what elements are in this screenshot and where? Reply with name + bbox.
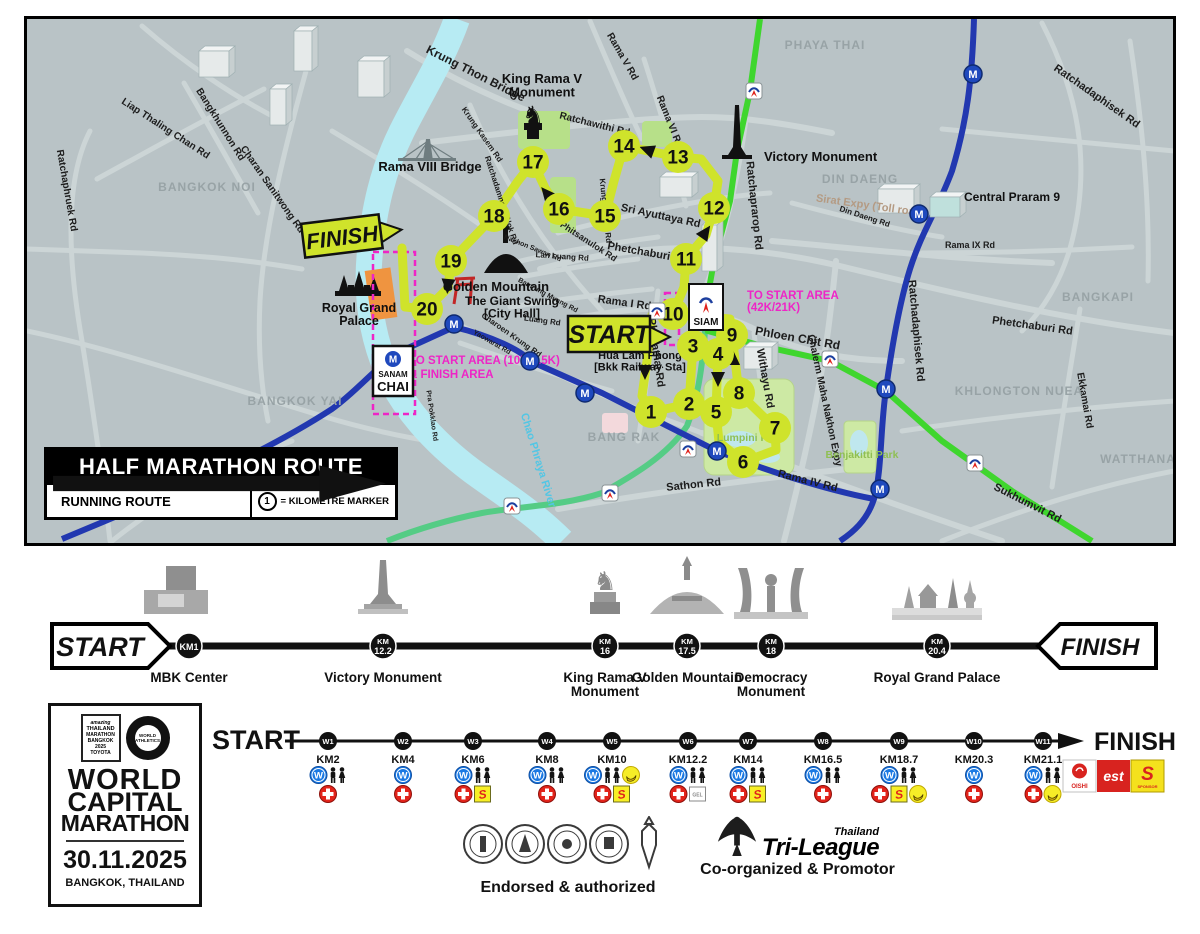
district-label: BANGKOK YAI bbox=[247, 394, 342, 408]
svg-text:W: W bbox=[533, 771, 542, 782]
station-km-label: KM10 bbox=[597, 754, 626, 766]
road-label: Rama IX Rd bbox=[945, 240, 995, 250]
landmark-icon-democracy bbox=[734, 568, 808, 619]
district-label: PHAYA THAI bbox=[785, 38, 866, 52]
label: Royal Grand Palace bbox=[874, 670, 1001, 685]
km-marker-number: 20 bbox=[416, 300, 437, 321]
km-marker-number: 8 bbox=[734, 384, 745, 405]
km-marker-number: 7 bbox=[770, 419, 781, 440]
district-label: BANGKAPI bbox=[1062, 290, 1134, 304]
road-label: Ratchadaphisek Rd bbox=[906, 279, 927, 382]
world-athletics-badge: WORLD ATHLETICS bbox=[126, 716, 170, 760]
km-marker-number: 1 bbox=[646, 403, 657, 424]
svg-text:W3: W3 bbox=[467, 737, 478, 746]
svg-text:est: est bbox=[1103, 768, 1125, 784]
svg-text:W10: W10 bbox=[966, 737, 981, 746]
label: MBK Center bbox=[150, 670, 228, 685]
toilet-icon bbox=[826, 767, 841, 783]
svg-text:M: M bbox=[525, 356, 534, 368]
district-label: BANG RAK bbox=[588, 430, 661, 444]
route-map: ♞ bbox=[24, 16, 1176, 546]
running-route-arrow-icon bbox=[47, 450, 395, 517]
district-label: DIN DAENG bbox=[822, 172, 898, 186]
svg-text:W1: W1 bbox=[322, 737, 333, 746]
svg-text:W8: W8 bbox=[817, 737, 828, 746]
staging-note: TO START AREA bbox=[747, 290, 839, 302]
road-label: Ekkamai Rd bbox=[1074, 372, 1095, 430]
label: Rama VIII Bridge bbox=[378, 159, 481, 174]
svg-text:CHAI: CHAI bbox=[377, 379, 409, 394]
road-label: Sri Ayuttaya Rd bbox=[620, 202, 702, 231]
label: King Rama VMonument bbox=[502, 71, 583, 100]
svg-text:M: M bbox=[875, 484, 884, 496]
km-marker-number: 3 bbox=[688, 337, 699, 358]
toilet-icon bbox=[751, 767, 766, 783]
endorsed-logos: Endorsed & authorized bbox=[448, 816, 688, 897]
svg-text:M: M bbox=[712, 446, 721, 458]
landmark-timeline: STARTFINISHKM1MBK CenterKM12.2Victory Mo… bbox=[0, 552, 1200, 710]
km-marker-number: 6 bbox=[738, 453, 749, 474]
toilet-icon bbox=[605, 767, 620, 783]
label: Hua Lam Phong[Bkk Railway Sta] bbox=[594, 350, 686, 374]
svg-text:W: W bbox=[734, 771, 743, 782]
km-marker-number: 12 bbox=[703, 199, 724, 220]
station-km-label: KM8 bbox=[535, 754, 558, 766]
svg-text:W2: W2 bbox=[397, 737, 408, 746]
staging-note: (42K/21K) bbox=[747, 302, 800, 314]
station-km-label: KM2 bbox=[316, 754, 339, 766]
station-km-label: KM20.3 bbox=[955, 754, 994, 766]
km-marker-number: 16 bbox=[548, 200, 569, 221]
label: DemocracyMonument bbox=[735, 670, 808, 699]
coorganized-label: Co-organized & Promotor bbox=[700, 861, 895, 879]
station-km-label: KM12.2 bbox=[669, 754, 708, 766]
svg-text:GEL: GEL bbox=[692, 793, 702, 799]
landmark-icon-mbk bbox=[144, 566, 208, 614]
svg-text:M: M bbox=[389, 355, 397, 366]
svg-text:12.2: 12.2 bbox=[374, 646, 392, 656]
km-marker-number: 9 bbox=[727, 326, 738, 347]
road-label: Lan Luang Rd bbox=[535, 250, 589, 263]
road-label: Ratchaprarop Rd bbox=[743, 161, 764, 251]
svg-text:W: W bbox=[885, 771, 894, 782]
toilet-icon bbox=[691, 767, 706, 783]
thailand-marathon-badge: amazing THAILAND MARATHON BANGKOK 2025 T… bbox=[81, 714, 121, 762]
svg-text:M: M bbox=[914, 209, 923, 221]
divider bbox=[66, 840, 184, 842]
svg-text:KM: KM bbox=[599, 637, 611, 646]
landmark-icon-rama5: ♞ bbox=[590, 566, 620, 614]
km-marker-number: 14 bbox=[613, 137, 635, 158]
garuda-emblem-icon bbox=[716, 813, 758, 859]
svg-text:KM1: KM1 bbox=[179, 642, 198, 652]
timeline-start-label: START bbox=[56, 632, 146, 662]
district-label: WATTHANA bbox=[1100, 452, 1173, 466]
coorganizer: Thailand Tri-League Co-organized & Promo… bbox=[700, 813, 895, 879]
svg-text:17.5: 17.5 bbox=[678, 646, 696, 656]
svg-text:S: S bbox=[1141, 764, 1154, 785]
svg-text:W: W bbox=[399, 771, 408, 782]
svg-text:W7: W7 bbox=[742, 737, 753, 746]
timeline-finish-label: FINISH bbox=[1061, 634, 1140, 661]
svg-text:KM: KM bbox=[931, 637, 943, 646]
station-km-label: KM4 bbox=[391, 754, 415, 766]
label: Central Praram 9 bbox=[964, 190, 1060, 204]
toilet-icon bbox=[902, 767, 917, 783]
district-label: KHLONGTON NUEA bbox=[955, 384, 1083, 398]
endorsed-label: Endorsed & authorized bbox=[448, 879, 688, 897]
station-km-label: KM14 bbox=[733, 754, 763, 766]
event-logo-block: amazing THAILAND MARATHON BANGKOK 2025 T… bbox=[48, 703, 202, 907]
km-marker-number: 10 bbox=[662, 305, 683, 326]
district-label: BANGKOK NOI bbox=[158, 180, 256, 194]
svg-text:W: W bbox=[674, 771, 683, 782]
toilet-icon bbox=[331, 767, 346, 783]
km-marker-number: 19 bbox=[440, 252, 461, 273]
toilet-icon bbox=[476, 767, 491, 783]
road-label: Ratchadaphisek Rd bbox=[1051, 62, 1142, 130]
svg-text:KM: KM bbox=[377, 637, 389, 646]
svg-text:M: M bbox=[449, 319, 458, 331]
svg-text:M: M bbox=[968, 69, 977, 81]
station-km-label: KM21.1 bbox=[1024, 754, 1063, 766]
svg-text:20.4: 20.4 bbox=[928, 646, 946, 656]
svg-text:W6: W6 bbox=[682, 737, 693, 746]
toilet-icon bbox=[550, 767, 565, 783]
svg-text:W9: W9 bbox=[893, 737, 904, 746]
toilet-icon bbox=[1046, 767, 1061, 783]
siam-station-label: SIAM bbox=[694, 317, 719, 328]
water-finish-label: FINISH bbox=[1094, 728, 1176, 756]
svg-text:W: W bbox=[970, 771, 979, 782]
map-legend: HALF MARATHON ROUTE RUNNING ROUTE 1 = KI… bbox=[44, 447, 398, 520]
svg-text:W4: W4 bbox=[541, 737, 553, 746]
water-arrow-icon bbox=[1058, 733, 1084, 749]
start-flag-label: START bbox=[568, 321, 652, 349]
svg-text:M: M bbox=[881, 384, 890, 396]
svg-text:SPONSOR: SPONSOR bbox=[1137, 784, 1157, 789]
poster: ♞ bbox=[0, 0, 1200, 934]
svg-text:W: W bbox=[1029, 771, 1038, 782]
svg-text:W: W bbox=[589, 771, 598, 782]
svg-text:18: 18 bbox=[766, 646, 776, 656]
landmark-icon-golden bbox=[650, 556, 724, 614]
km-marker-number: 18 bbox=[483, 207, 504, 228]
km-marker-number: 4 bbox=[713, 345, 724, 366]
label: Golden Mountain bbox=[443, 279, 549, 294]
station-km-label: KM16.5 bbox=[804, 754, 843, 766]
landmark-icon-palace bbox=[892, 578, 982, 620]
svg-text:♞: ♞ bbox=[593, 566, 616, 596]
svg-text:KM: KM bbox=[765, 637, 777, 646]
event-location: BANGKOK, THAILAND bbox=[51, 877, 199, 889]
svg-text:W: W bbox=[809, 771, 818, 782]
label: Golden Mountain bbox=[632, 670, 742, 685]
svg-text:W11: W11 bbox=[1035, 737, 1050, 746]
endorsement-emblems bbox=[453, 816, 683, 872]
km-marker-number: 13 bbox=[667, 148, 688, 169]
svg-text:M: M bbox=[580, 388, 589, 400]
event-date: 30.11.2025 bbox=[51, 846, 199, 875]
station-km-label: KM18.7 bbox=[880, 754, 919, 766]
road-label: Rama V Rd bbox=[604, 31, 640, 82]
event-title: WORLD CAPITAL MARATHON bbox=[51, 769, 199, 834]
svg-text:W: W bbox=[459, 771, 468, 782]
svg-text:W: W bbox=[314, 771, 323, 782]
km-marker-number: 17 bbox=[522, 153, 543, 174]
station-km-label: KM6 bbox=[461, 754, 484, 766]
svg-text:OISHI: OISHI bbox=[1071, 784, 1088, 790]
emblem-icon bbox=[642, 824, 656, 867]
sanam-chai-label: SANAM bbox=[378, 370, 408, 379]
road-label: Sathon Rd bbox=[666, 476, 722, 494]
label: Victory Monument bbox=[764, 149, 878, 164]
landmark-icon-victory bbox=[358, 560, 408, 614]
park-label: Benjakitti Park bbox=[826, 449, 899, 461]
tri-league-logo: Tri-League bbox=[762, 837, 879, 859]
km-marker-number: 11 bbox=[676, 250, 697, 271]
svg-text:KM: KM bbox=[681, 637, 693, 646]
svg-text:W5: W5 bbox=[606, 737, 617, 746]
km-marker-number: 2 bbox=[684, 395, 695, 416]
label: Victory Monument bbox=[324, 670, 442, 685]
km-marker-number: 15 bbox=[594, 207, 616, 228]
svg-text:16: 16 bbox=[600, 646, 610, 656]
staging-note: & FINISH AREA bbox=[409, 369, 494, 381]
km-marker-number: 5 bbox=[711, 403, 722, 424]
